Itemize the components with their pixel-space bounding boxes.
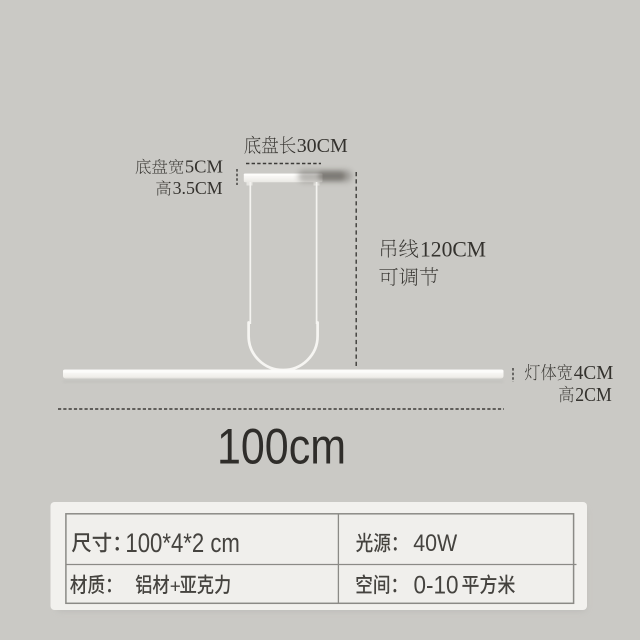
svg-text:3.5CM: 3.5CM [173,178,223,198]
svg-text:120CM: 120CM [420,236,486,261]
svg-text:4CM: 4CM [574,363,614,384]
svg-text:2CM: 2CM [575,385,612,406]
svg-text:40W: 40W [413,530,457,557]
svg-text:100*4*2 cm: 100*4*2 cm [125,528,239,558]
svg-text:+: + [170,576,181,597]
svg-text:30CM: 30CM [297,135,348,157]
svg-text:0-10: 0-10 [414,572,459,599]
svg-text:100cm: 100cm [217,419,346,475]
svg-text:5CM: 5CM [185,157,223,177]
